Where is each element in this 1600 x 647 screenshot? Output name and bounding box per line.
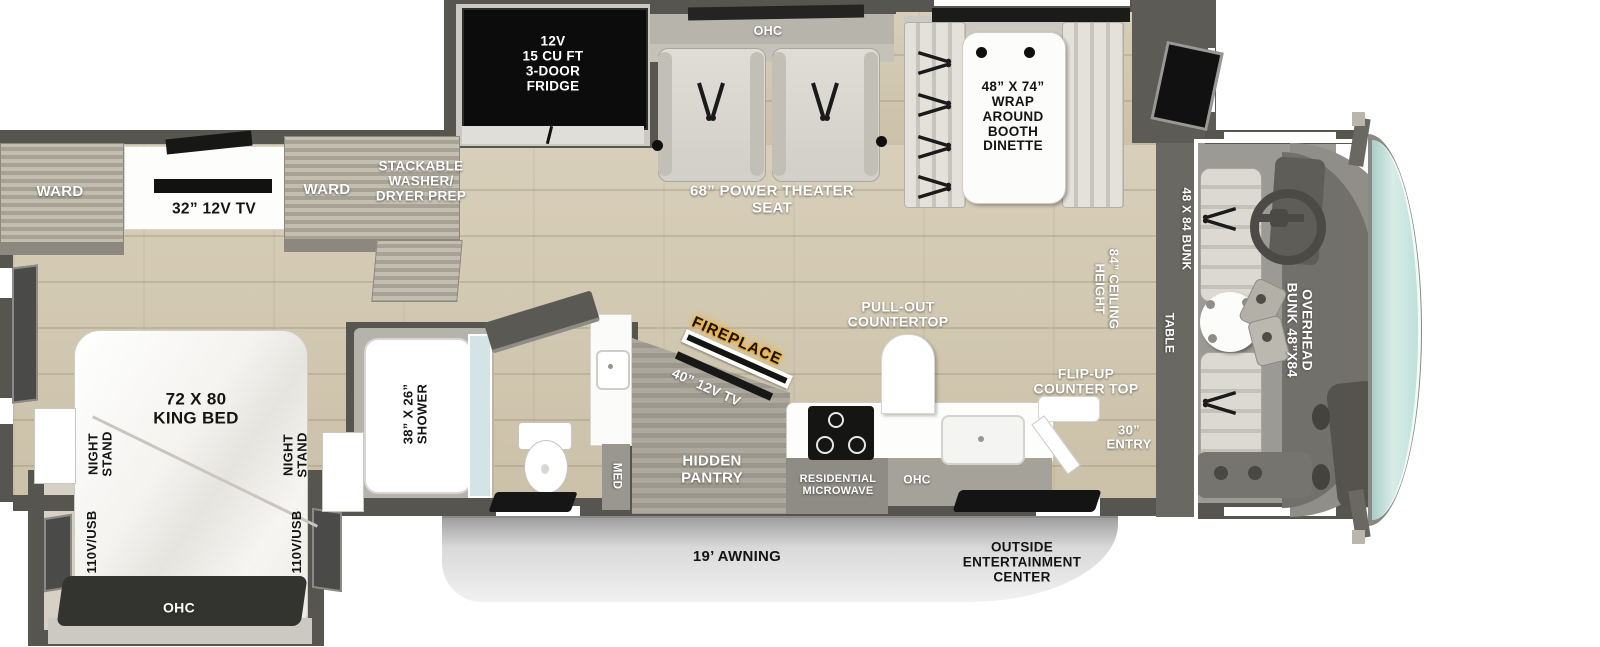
- theater-seat-label: 68” POWER THEATER SEAT: [690, 184, 854, 217]
- wd-lower-cabinet: [371, 240, 462, 302]
- burner-icon-1: [828, 412, 844, 428]
- cupholder-dot-right: [876, 136, 887, 147]
- awning-label: 19’ AWNING: [693, 549, 781, 566]
- seatbelt-icon: [914, 88, 952, 122]
- bath-faucet-dot: [608, 364, 613, 369]
- night-stand-left: [34, 408, 76, 484]
- dinette-table-dot-1: [976, 47, 987, 58]
- windshield: [1372, 140, 1421, 520]
- fridge-counter: [462, 126, 644, 144]
- burner-icon-2: [816, 436, 834, 454]
- theater-armrest-3: [772, 52, 786, 176]
- cab-table-label: TABLE: [1162, 313, 1175, 354]
- outlet-right-label: 110V/USB: [290, 510, 304, 573]
- king-bed-label: 72 X 80 KING BED: [153, 390, 239, 427]
- theater-armrest-4: [864, 52, 878, 176]
- dinette-table-dot-2: [1024, 47, 1035, 58]
- side-mirror-top-tip: [1352, 112, 1365, 126]
- med-label: MED: [610, 463, 623, 489]
- dinette-window: [932, 8, 1130, 22]
- seatbelt-icon: [692, 78, 730, 122]
- galley-ohc-label: OHC: [754, 25, 783, 39]
- seatbelt-icon: [914, 170, 952, 204]
- wardrobe-front-shadow: [0, 243, 124, 255]
- shower-label: 38” X 26” SHOWER: [402, 384, 431, 445]
- bath-mat: [488, 492, 577, 512]
- bedroom-window-glass-1: [12, 264, 38, 403]
- microwave-label: RESIDENTIAL MICROWAVE: [800, 473, 877, 497]
- theater-armrest-1: [658, 52, 672, 176]
- outside-ent-label: OUTSIDE ENTERTAINMENT CENTER: [963, 541, 1081, 586]
- fridge-label: 12V 15 CU FT 3-DOOR FRIDGE: [523, 34, 584, 93]
- bedroom-window-glass-3: [312, 508, 342, 592]
- night-stand-right-label: NIGHT STAND: [282, 432, 311, 477]
- burner-icon-3: [848, 436, 866, 454]
- flip-up-label: FLIP-UP COUNTER TOP: [1034, 367, 1139, 398]
- floorplan-canvas: 12V 15 CU FT 3-DOOR FRIDGE OHC 68” POWER…: [0, 0, 1600, 647]
- side-mirror-bottom-tip: [1352, 530, 1365, 544]
- seatbelt-icon: [914, 46, 952, 80]
- theater-armrest-2: [750, 52, 764, 176]
- dinette-bench-right: [1062, 22, 1124, 208]
- hidden-pantry-label: HIDDEN PANTRY: [681, 454, 743, 487]
- ceiling-height-label: 84” CEILING HEIGHT: [1092, 249, 1121, 330]
- overhead-bunk-label: OVERHEAD BUNK 48”X84: [1284, 282, 1315, 377]
- night-stand-right: [322, 432, 364, 512]
- seatbelt-icon: [914, 130, 952, 164]
- kitchen-ohc-label: OHC: [903, 473, 931, 486]
- dinette-label: 48” X 74” WRAP AROUND BOOTH DINETTE: [982, 80, 1045, 154]
- outlet-left-label: 110V/USB: [85, 510, 99, 573]
- flip-up-countertop: [1038, 396, 1100, 422]
- bath-sink: [596, 350, 630, 390]
- cab-bunk-label: 48 X 84 BUNK: [1179, 188, 1192, 271]
- bed-slide-wall-left: [28, 470, 44, 646]
- pull-out-countertop: [881, 334, 935, 414]
- shower-glass: [468, 334, 492, 498]
- pull-out-label: PULL-OUT COUNTERTOP: [848, 300, 949, 331]
- bedroom-tv-icon: [154, 179, 272, 193]
- cupholder-dot-left: [652, 140, 663, 151]
- wardrobe-rear-shadow: [284, 240, 384, 252]
- seatbelt-icon: [806, 78, 844, 122]
- ward-rear-label: WARD: [303, 182, 350, 199]
- bedroom-tv-label: 32” 12V TV: [172, 200, 256, 217]
- entry-label: 30” ENTRY: [1106, 424, 1151, 453]
- entry-mat: [952, 490, 1101, 512]
- window-dinette-top: [934, 0, 1130, 6]
- kitchen-faucet-dot: [978, 436, 984, 442]
- bed-ohc-label: OHC: [163, 600, 195, 615]
- ward-front-label: WARD: [36, 184, 83, 201]
- night-stand-left-label: NIGHT STAND: [87, 431, 116, 476]
- toilet-flush-dot: [541, 464, 549, 474]
- washer-dryer-label: STACKABLE WASHER/ DRYER PREP: [376, 160, 466, 205]
